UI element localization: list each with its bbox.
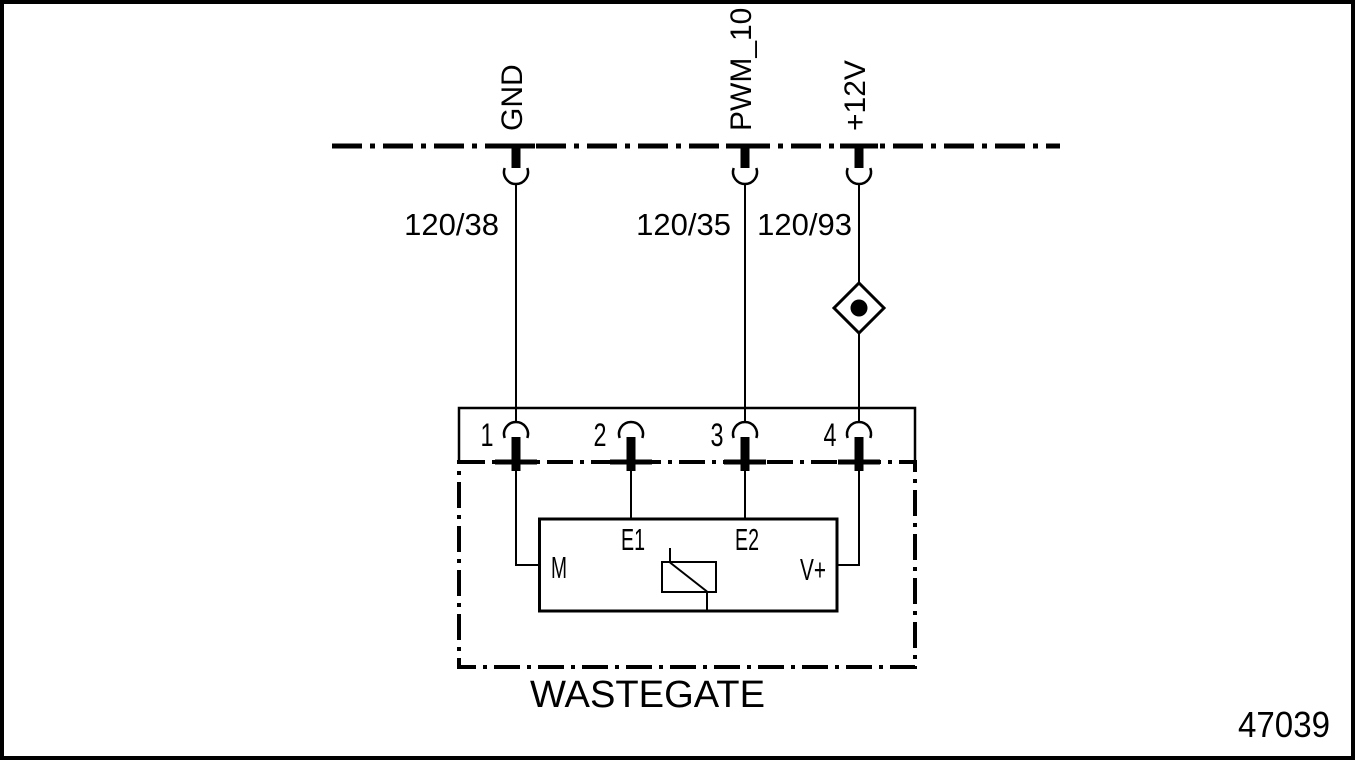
pin-stub-1 — [512, 437, 521, 471]
pin-stub-3 — [741, 437, 750, 471]
signal-label-gnd: GND — [496, 64, 529, 131]
wire-label-120-93: 120/93 — [757, 207, 852, 242]
harness-bus — [332, 144, 1060, 149]
pin-number-1: 1 — [481, 417, 494, 453]
diamond-splice-dot-icon — [851, 300, 868, 317]
figure-number: 47039 — [1238, 704, 1330, 745]
pin-number-4: 4 — [824, 417, 837, 453]
pin-number-2: 2 — [594, 417, 607, 453]
wire-label-120-35: 120/35 — [636, 207, 731, 242]
bus-pin-stub-12v — [855, 146, 864, 168]
bus-pin-stub-pwm — [741, 146, 750, 168]
signal-label-pwm-10: PWM_10 — [725, 8, 758, 131]
pin-stub-2 — [627, 437, 636, 471]
pin-stub-4 — [855, 437, 864, 471]
terminal-label-e2: E2 — [735, 522, 759, 557]
component-label: WASTEGATE — [530, 674, 765, 716]
terminal-label-vplus: V+ — [800, 552, 826, 587]
bus-pin-stub-gnd — [512, 146, 521, 168]
terminal-label-e1: E1 — [621, 522, 645, 557]
pin-number-3: 3 — [711, 417, 724, 453]
actuator-block — [540, 519, 838, 611]
wire-label-120-38: 120/38 — [404, 207, 499, 242]
wiring-diagram-page: GND 120/38 PWM_10 120/35 +12V 120/93 1 2 — [0, 0, 1355, 760]
signal-label-12v: +12V — [839, 60, 872, 131]
wastegate-wiring-diagram: GND 120/38 PWM_10 120/35 +12V 120/93 1 2 — [0, 0, 1355, 760]
terminal-label-m: M — [551, 550, 567, 585]
page-border — [2, 2, 1353, 758]
